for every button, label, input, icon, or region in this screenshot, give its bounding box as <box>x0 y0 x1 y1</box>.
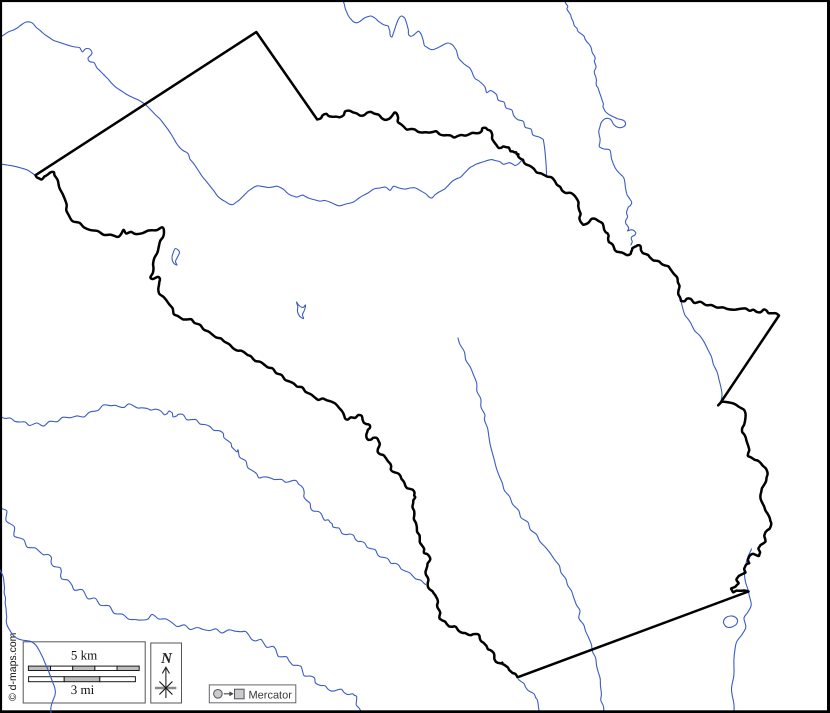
svg-text:Mercator: Mercator <box>249 689 293 701</box>
svg-text:N: N <box>160 651 173 667</box>
svg-text:5 km: 5 km <box>71 648 97 663</box>
svg-text:© d-maps.com: © d-maps.com <box>7 632 19 701</box>
svg-text:3 mi: 3 mi <box>71 682 95 697</box>
